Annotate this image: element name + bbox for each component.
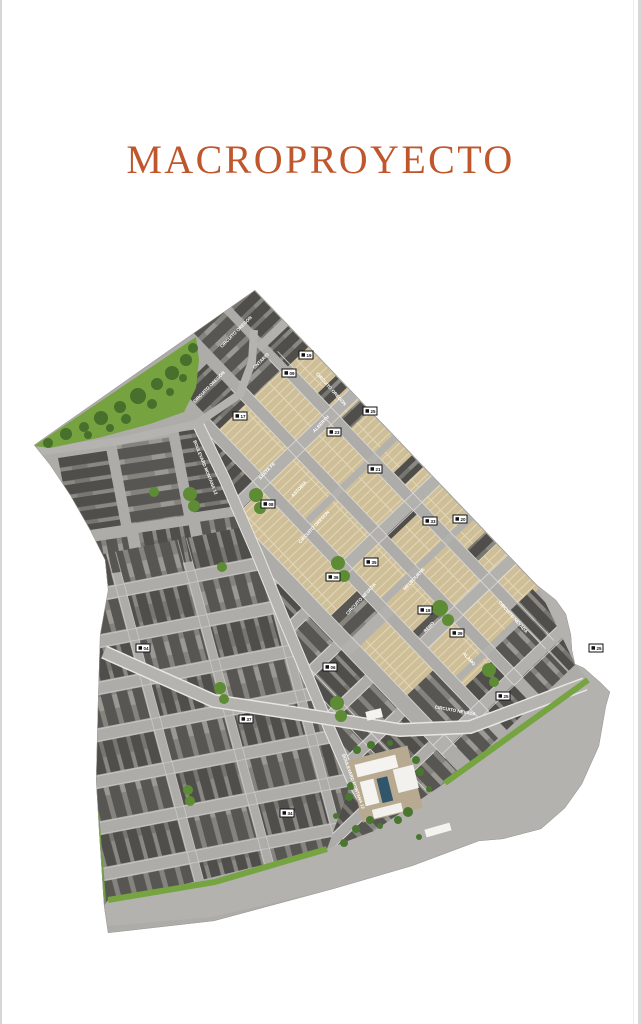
svg-text:37: 37: [246, 717, 252, 722]
svg-text:18: 18: [425, 608, 431, 613]
svg-text:36: 36: [333, 575, 339, 580]
svg-text:25: 25: [503, 694, 509, 699]
svg-text:34: 34: [287, 811, 293, 816]
svg-text:08: 08: [268, 502, 274, 507]
svg-text:25: 25: [370, 409, 376, 414]
svg-text:39: 39: [457, 631, 463, 636]
svg-text:04: 04: [143, 646, 149, 651]
svg-text:21: 21: [375, 467, 381, 472]
svg-text:23: 23: [334, 430, 340, 435]
svg-text:09: 09: [289, 371, 295, 376]
svg-text:19: 19: [306, 353, 312, 358]
svg-text:06: 06: [330, 665, 336, 670]
svg-text:25: 25: [596, 646, 602, 651]
svg-text:17: 17: [240, 414, 246, 419]
svg-text:20: 20: [460, 517, 466, 522]
svg-text:35: 35: [371, 560, 377, 565]
svg-text:33: 33: [430, 519, 436, 524]
